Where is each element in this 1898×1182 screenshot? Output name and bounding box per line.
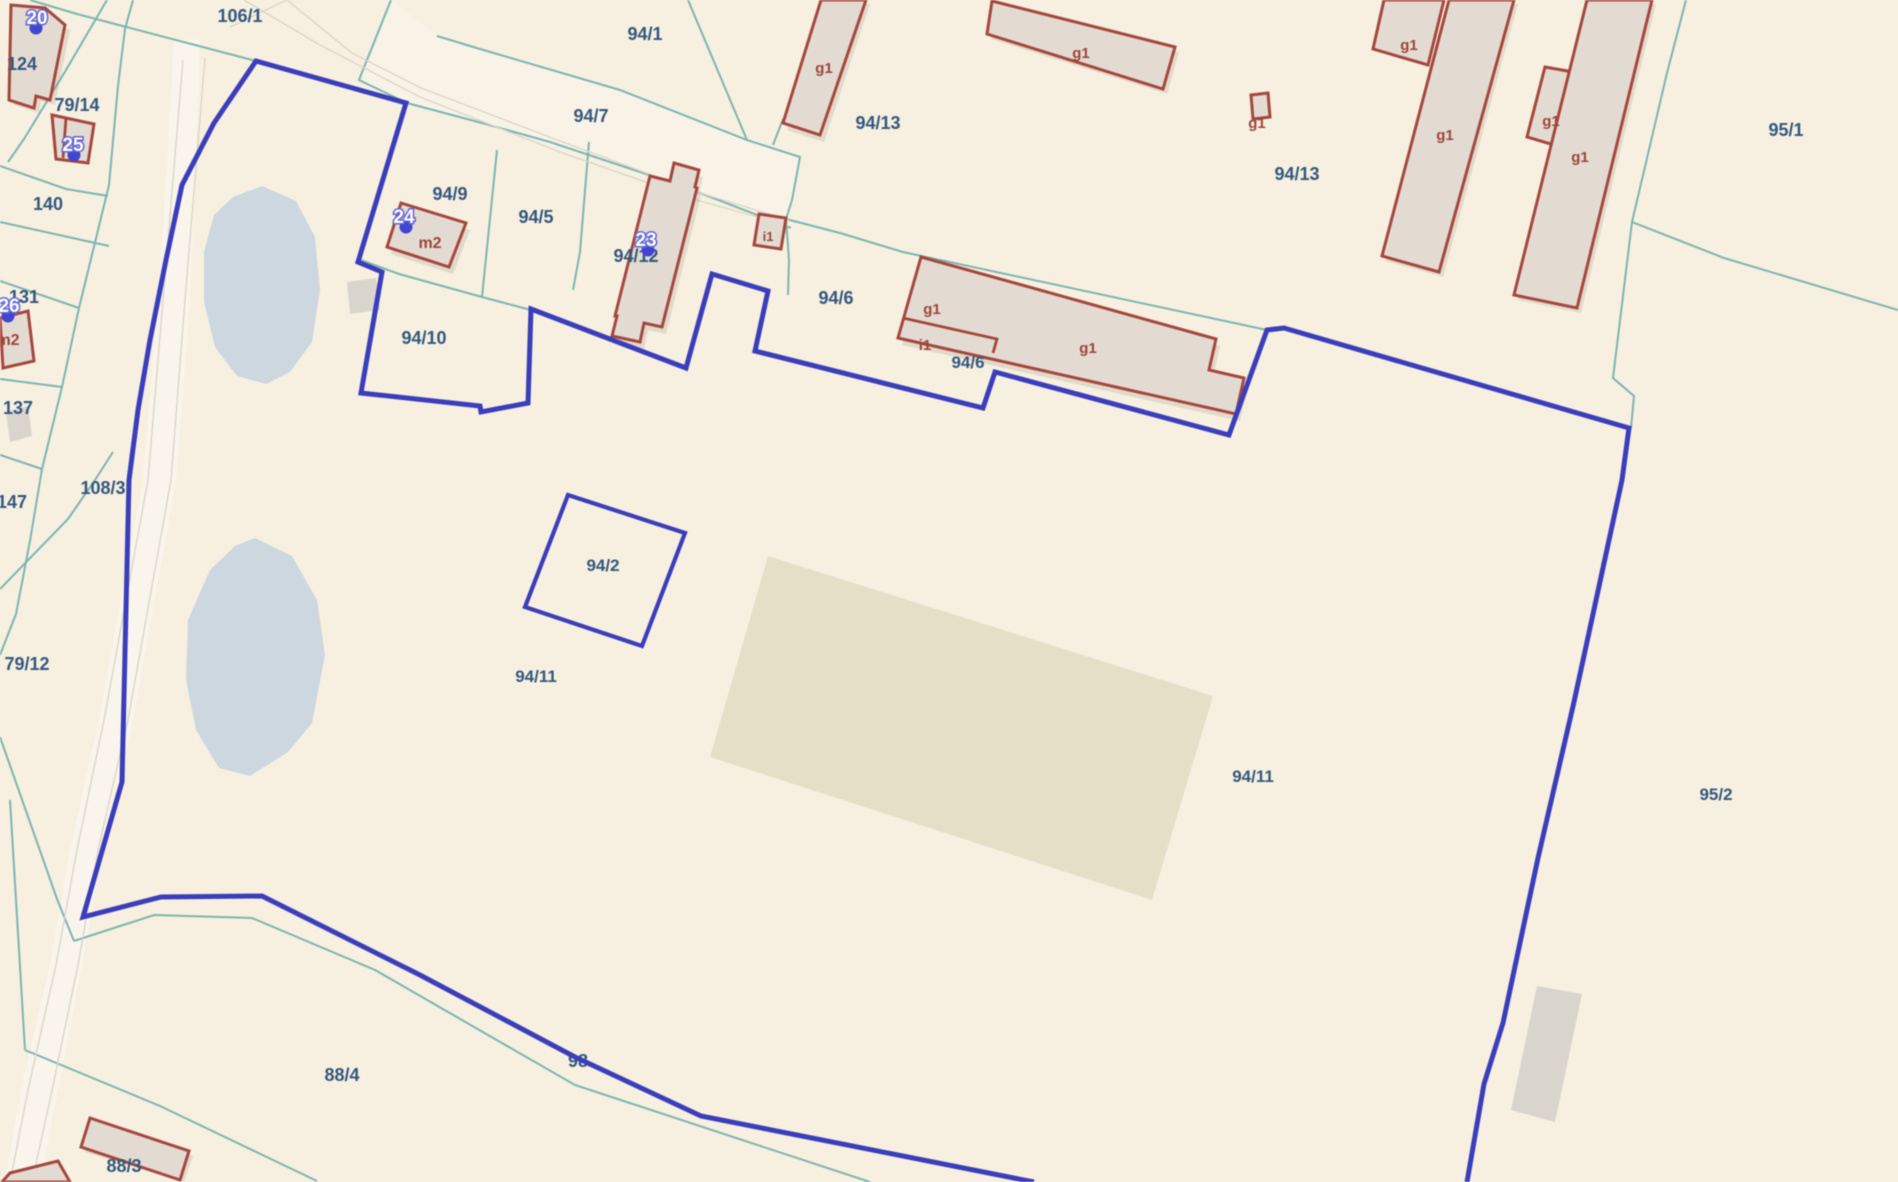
svg-text:124: 124 [7, 54, 37, 74]
svg-text:g1: g1 [1436, 127, 1454, 144]
svg-text:m2: m2 [0, 332, 20, 349]
svg-text:94/7: 94/7 [573, 106, 608, 126]
svg-text:79/12: 79/12 [4, 654, 49, 674]
svg-text:88/3: 88/3 [106, 1156, 141, 1176]
svg-text:94/13: 94/13 [1274, 164, 1319, 184]
svg-text:94/11: 94/11 [515, 667, 557, 686]
svg-text:g1: g1 [815, 60, 833, 77]
svg-text:88/4: 88/4 [324, 1065, 359, 1085]
svg-text:25: 25 [62, 135, 84, 156]
svg-text:94/11: 94/11 [1232, 767, 1274, 786]
svg-text:94/10: 94/10 [401, 328, 446, 348]
svg-text:g1: g1 [1571, 149, 1589, 166]
svg-text:26: 26 [0, 296, 20, 317]
svg-text:94/6: 94/6 [818, 288, 853, 308]
svg-text:i1: i1 [763, 229, 774, 244]
svg-text:106/1: 106/1 [217, 6, 262, 26]
svg-text:m2: m2 [418, 235, 441, 252]
svg-text:23: 23 [635, 230, 656, 251]
svg-text:24: 24 [393, 207, 415, 228]
svg-text:94/9: 94/9 [432, 184, 467, 204]
svg-text:94/13: 94/13 [855, 113, 900, 133]
svg-text:20: 20 [26, 8, 47, 29]
svg-text:g1: g1 [923, 301, 941, 318]
svg-text:79/14: 79/14 [54, 95, 99, 115]
svg-text:95/2: 95/2 [1699, 785, 1732, 804]
svg-text:137: 137 [3, 398, 33, 418]
svg-text:g1: g1 [1400, 37, 1418, 54]
svg-text:94/2: 94/2 [586, 556, 619, 575]
svg-text:94/6: 94/6 [951, 353, 984, 372]
svg-text:g1: g1 [1072, 45, 1090, 62]
svg-text:g1: g1 [1079, 340, 1097, 357]
svg-text:g1: g1 [1248, 115, 1266, 132]
svg-text:94/5: 94/5 [518, 207, 553, 227]
svg-text:95/1: 95/1 [1768, 120, 1803, 140]
svg-text:108/3: 108/3 [80, 478, 125, 498]
svg-text:g1: g1 [1542, 113, 1560, 130]
svg-text:94/1: 94/1 [627, 24, 662, 44]
svg-text:i1: i1 [919, 337, 932, 354]
svg-text:140: 140 [33, 194, 63, 214]
svg-text:147: 147 [0, 492, 27, 512]
